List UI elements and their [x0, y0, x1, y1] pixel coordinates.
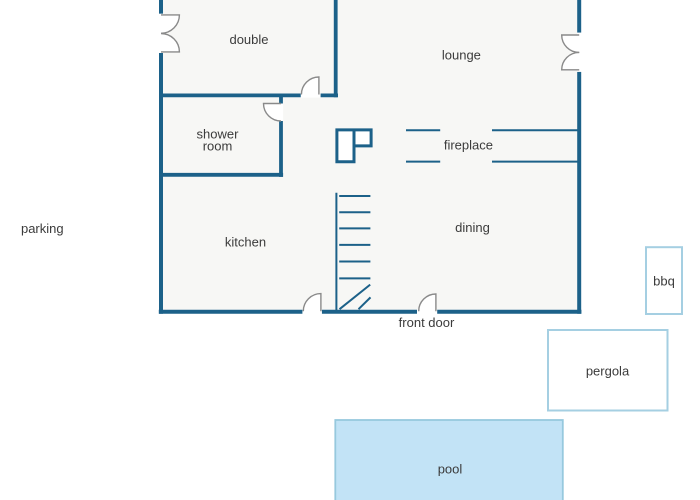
svg-text:parking: parking: [21, 221, 64, 236]
svg-text:dining: dining: [455, 220, 490, 235]
svg-text:kitchen: kitchen: [225, 235, 266, 250]
svg-text:double: double: [229, 32, 268, 47]
svg-text:lounge: lounge: [442, 48, 481, 63]
svg-text:fireplace: fireplace: [444, 137, 493, 152]
svg-text:bbq: bbq: [653, 274, 675, 289]
svg-text:front door: front door: [399, 315, 455, 330]
svg-text:room: room: [203, 139, 233, 154]
svg-text:pergola: pergola: [586, 364, 630, 379]
svg-text:pool: pool: [438, 462, 463, 477]
